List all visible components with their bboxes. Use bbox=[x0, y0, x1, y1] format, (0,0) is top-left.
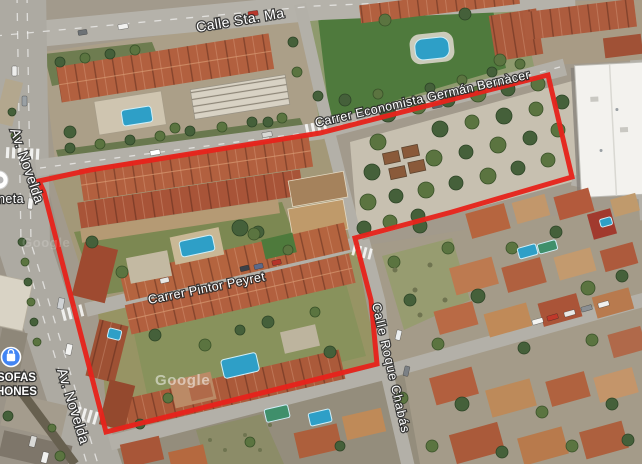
watermark-google: Google bbox=[155, 372, 210, 389]
store-label-line1: SOFAS bbox=[0, 372, 36, 384]
poi-partial-label: neta bbox=[0, 192, 24, 206]
satellite-map[interactable]: Google Google Calle Sta. Ma Carrer Econo… bbox=[0, 0, 642, 464]
warehouse-building bbox=[571, 62, 642, 198]
store-label-line2: HONES bbox=[0, 386, 37, 398]
watermark-google-faint: Google bbox=[22, 235, 70, 250]
